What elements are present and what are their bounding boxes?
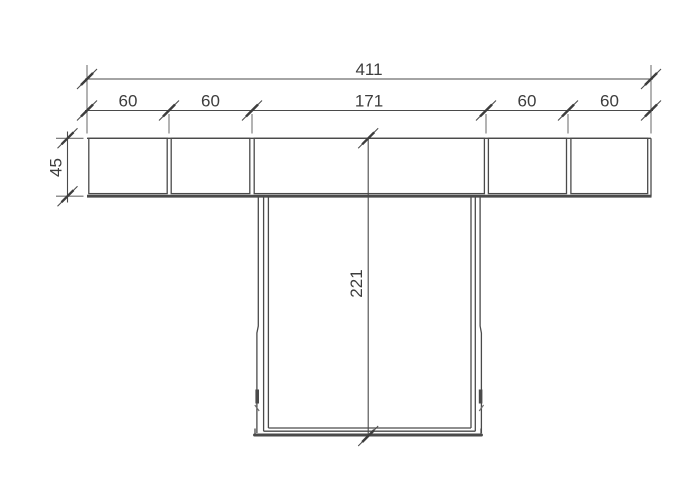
dim-stem-height-label: 221 (347, 269, 366, 297)
drawing-svg: 411 60 60 171 60 60 (0, 0, 700, 500)
flange-profile (87, 138, 652, 196)
flange-cell (488, 138, 566, 193)
dim-segment-label: 60 (600, 92, 619, 111)
dim-segment-label: 60 (201, 92, 220, 111)
dimension-total-width: 411 (77, 60, 661, 89)
dimension-stem-height: 221 (347, 128, 378, 446)
dimension-flange-height: 45 (47, 128, 84, 206)
flange-cell (254, 138, 484, 193)
stem-profile (255, 197, 484, 435)
dim-flange-height-label: 45 (47, 158, 66, 177)
dim-segment-label: 171 (355, 92, 383, 111)
flange-cell (571, 138, 648, 193)
dimension-chain: 60 60 171 60 60 (77, 92, 661, 121)
dim-segment-label: 60 (119, 92, 138, 111)
flange-cell (171, 138, 250, 193)
technical-drawing: 411 60 60 171 60 60 (0, 0, 700, 500)
dim-segment-label: 60 (518, 92, 537, 111)
dim-total-width-label: 411 (355, 60, 382, 79)
flange-cell (89, 138, 167, 193)
